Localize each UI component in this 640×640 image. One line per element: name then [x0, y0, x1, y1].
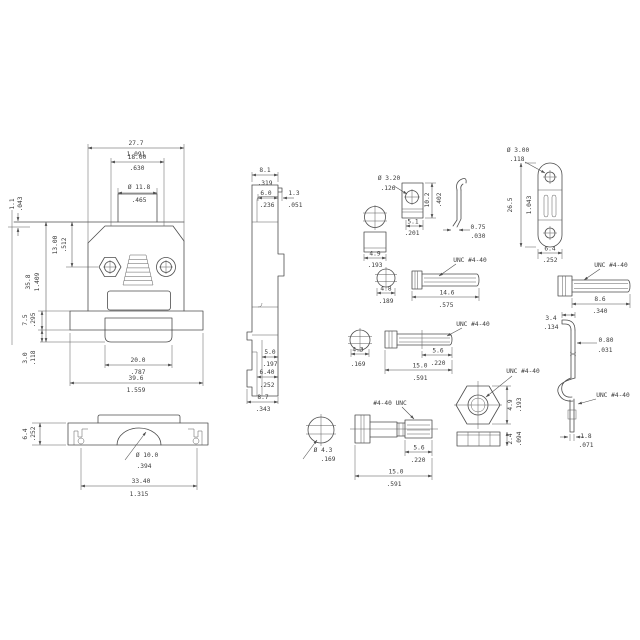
dim-bv_w-in: 1.315	[130, 491, 149, 498]
dim-fv_step-in: .118	[30, 350, 37, 365]
dim-sp_w-mm: 6.4	[544, 246, 555, 253]
thumbscrew-left	[99, 258, 121, 277]
dim-zc_bot-in: .071	[579, 442, 594, 449]
dim-sp_w-in: .252	[543, 257, 558, 264]
z-clip-top-hook	[562, 320, 575, 330]
dim-s3_thread-in: .220	[431, 360, 446, 367]
dim-fv_dia-in: .465	[132, 197, 147, 204]
dim-bv_dia-mm: Ø 10.0	[136, 451, 159, 459]
dim-sv_lip-mm: 1.3	[288, 190, 299, 197]
dim-s3_thread-mm: 5.6	[432, 348, 443, 355]
dim-lp_hole-in: .126	[381, 185, 396, 192]
latch-plate-view: Ø 3.20 .126 10.2 .402 5.1 .201	[378, 174, 443, 237]
screw3-thread-label: UNC #4-40	[456, 321, 490, 328]
screw3-view: 4.3 .169 UNC #4-40 5.6 .220 15.0 .591	[348, 321, 490, 382]
dim-sv_b3-in: .343	[256, 406, 271, 413]
dim-sv_b2-in: .252	[260, 382, 275, 389]
dim-sp_hole-in: .118	[510, 156, 525, 163]
dim-hn_w-in: .193	[516, 397, 523, 412]
z-clip-detail	[568, 410, 576, 419]
dim-zc_top-in: .134	[544, 324, 559, 331]
dim-s3_head-mm: 4.3	[352, 347, 363, 354]
dim-rs_len-mm: 8.6	[594, 296, 605, 303]
dim-sp_h-in: 1.043	[526, 195, 533, 214]
hood-front-dim-lines	[8, 144, 203, 386]
drawing-sheet: 27.7 1.091 18.00 .630 Ø 11.8 .465 1.1 .0…	[0, 0, 640, 640]
dim-s3_len-mm: 15.0	[413, 363, 428, 370]
technical-drawing: 27.7 1.091 18.00 .630 Ø 11.8 .465 1.1 .0…	[0, 0, 640, 640]
screw2-shank	[422, 274, 479, 286]
dim-sv_mid_w-mm: 6.0	[260, 190, 271, 197]
dim-lp_w-mm: 5.1	[407, 219, 418, 226]
dim-s2_len-mm: 14.6	[440, 290, 455, 297]
short-screw-head	[558, 276, 572, 296]
dim-cl_t-mm: 0.75	[471, 224, 486, 231]
hex-nut-thread-label: UNC #4-40	[506, 368, 540, 375]
dim-sv_top_w-mm: 8.1	[259, 167, 270, 174]
hood-bottom-dim-lines	[32, 423, 197, 490]
screwlock-plate-view: Ø 3.00 .118 26.5 1.043 6.4 .252	[507, 146, 562, 264]
screw3-shank	[397, 334, 452, 345]
cable-opening-arch	[117, 428, 161, 445]
screw2-head-side	[412, 271, 422, 289]
dim-lp_hole-mm: Ø 3.20	[378, 174, 401, 182]
hood-bottom-dim-text: 6.4 .252 Ø 10.0 .394 33.40 1.315	[22, 426, 158, 498]
dim-s2_head-in: .189	[379, 298, 394, 305]
jackscrew-thread-label: #4-40 UNC	[373, 400, 407, 407]
dim-sv_b1-mm: 5.0	[264, 349, 275, 356]
dim-bv_h-in: .252	[30, 426, 37, 441]
jackscrew-view: Ø 4.3 .169 #4-40 UNC 5.6 .220 15.0 .591	[303, 400, 438, 488]
plate-slot-left	[544, 195, 548, 217]
dim-zc_t-mm: 0.80	[599, 337, 614, 344]
dim-fv_h-in: 1.409	[34, 272, 41, 291]
short-screw-thread-label: UNC #4-40	[594, 262, 628, 269]
hood-bottom-outline	[68, 415, 208, 445]
dim-fv_total_w-mm: 39.6	[129, 375, 144, 382]
dim-js_thread-mm: 5.6	[413, 445, 424, 452]
hood-front-outline	[14, 194, 203, 342]
screw3-head-side	[385, 331, 397, 348]
dim-zc_top-mm: 3.4	[545, 315, 556, 322]
mount-hole-left	[78, 438, 84, 444]
dim-js_head-in: .169	[321, 456, 336, 463]
dim-sv_b3-mm: 8.7	[257, 394, 268, 401]
dim-js_len-mm: 15.0	[389, 469, 404, 476]
dim-sv_lip-in: .051	[288, 202, 303, 209]
spring-clip-view: 0.75 .030	[443, 179, 486, 241]
dim-fv_dia-mm: Ø 11.8	[128, 183, 151, 191]
dim-sv_b1-in: .197	[263, 361, 278, 368]
z-clip-c-hook	[558, 378, 575, 401]
dim-js_thread-in: .220	[411, 457, 426, 464]
screw2-view: 4.8 .189 UNC #4-40 14.6 .575	[375, 257, 487, 309]
dim-bv_dia-in: .394	[137, 463, 152, 470]
screwlock-plate-dim-text: Ø 3.00 .118 26.5 1.043 6.4 .252	[507, 146, 558, 264]
dim-lp_h-in: .402	[436, 192, 443, 207]
dim-sv_mid_w-in: .236	[260, 202, 275, 209]
dim-fv_inner_w-mm: 18.00	[128, 154, 147, 161]
thumbscrew-right	[157, 258, 176, 277]
dim-js_head-mm: Ø 4.3	[314, 446, 333, 454]
plate-slot-right	[552, 195, 556, 217]
dim-rs_len-in: .340	[593, 308, 608, 315]
dim-s2_head-mm: 4.8	[380, 286, 391, 293]
dim-fv_flange_h-in: .295	[30, 312, 37, 327]
hood-side-view: 8.1 .319 6.0 .236 1.3 .051 5.0 .197 6.40…	[247, 167, 303, 413]
dim-fv_screw_y-in: .512	[61, 237, 68, 252]
screw2-thread-label: UNC #4-40	[453, 257, 487, 264]
dim-s3_len-in: .591	[413, 375, 428, 382]
short-screw-shank	[572, 280, 630, 292]
dim-fv_top_w-mm: 27.7	[129, 140, 144, 147]
dim-fv_conn_w-mm: 20.0	[131, 357, 146, 364]
short-screw-view: UNC #4-40 8.6 .340	[558, 262, 630, 315]
hex-nut-view: UNC #4-40 4.9 .193 2.4 .094	[454, 368, 540, 446]
dim-bv_h-mm: 6.4	[22, 428, 29, 439]
dim-so_d-in: .193	[368, 262, 383, 269]
z-clip-view: 3.4 .134 0.80 .031 UNC #4-40 1.8 .071	[544, 312, 630, 449]
dim-fv_inner_w-in: .630	[130, 165, 145, 172]
hood-label-recess	[108, 291, 171, 310]
strain-relief-grille	[123, 255, 153, 285]
dim-bv_w-mm: 33.40	[132, 478, 151, 485]
dim-sv_top_w-in: .319	[258, 180, 273, 187]
dim-zc_t-in: .031	[598, 347, 613, 354]
dim-hn_t-in: .094	[516, 431, 523, 446]
latch-plate-outline	[402, 183, 423, 218]
dim-fv_screw_y-mm: 13.00	[52, 235, 59, 254]
dim-fv_total_w-in: 1.559	[127, 387, 146, 394]
dim-lp_w-in: .201	[405, 230, 420, 237]
z-clip-thread-label: UNC #4-40	[596, 392, 630, 399]
dim-s3_head-in: .169	[351, 361, 366, 368]
dim-lp_h-mm: 10.2	[424, 192, 431, 207]
standoff-side	[364, 232, 386, 252]
dim-fv_flange_h-mm: 7.5	[22, 314, 29, 325]
dim-fv_h-mm: 35.8	[25, 274, 32, 289]
standoff-view: 4.9 .193	[363, 205, 387, 269]
dim-sv_b2-mm: 6.40	[260, 369, 275, 376]
spring-clip-hook	[457, 179, 467, 191]
mount-hole-right	[193, 438, 199, 444]
hex-nut-side	[457, 432, 500, 446]
dim-hn_w-mm: 4.9	[507, 399, 514, 410]
dim-so_d-mm: 4.9	[369, 251, 380, 258]
dim-cl_t-in: .030	[471, 233, 486, 240]
dim-zc_bot-mm: 1.8	[580, 433, 591, 440]
dim-hn_t-mm: 2.4	[507, 433, 514, 444]
dim-fv_step-mm: 3.0	[22, 352, 29, 363]
hood-side-dim-text: 8.1 .319 6.0 .236 1.3 .051 5.0 .197 6.40…	[256, 167, 303, 413]
dim-fv_lip-mm: 1.1	[9, 198, 16, 209]
dim-fv_lip-in: .043	[17, 196, 24, 211]
dim-sp_hole-mm: Ø 3.00	[507, 146, 530, 154]
dim-js_len-in: .591	[387, 481, 402, 488]
dim-sp_h-mm: 26.5	[507, 197, 514, 212]
dim-s2_len-in: .575	[439, 302, 454, 309]
hood-front-view: 27.7 1.091 18.00 .630 Ø 11.8 .465 1.1 .0…	[8, 140, 203, 394]
hood-bottom-view: 6.4 .252 Ø 10.0 .394 33.40 1.315	[22, 415, 208, 498]
